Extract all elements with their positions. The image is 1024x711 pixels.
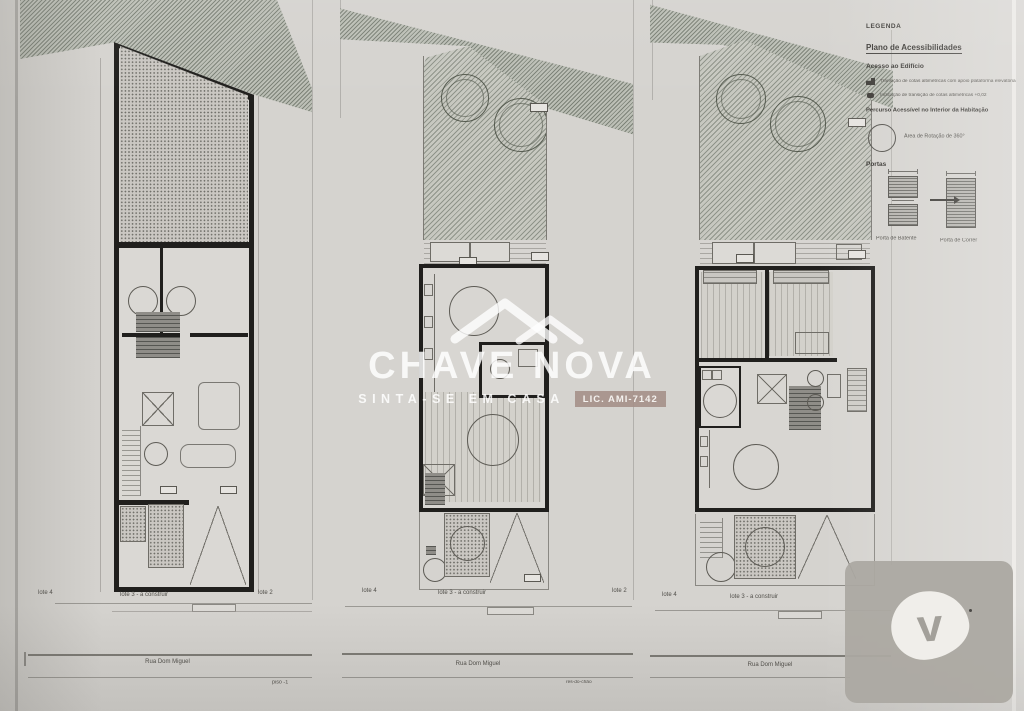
mid-wall xyxy=(699,358,837,362)
dimension-box xyxy=(848,250,866,259)
legend-title: LEGENDA xyxy=(866,24,901,31)
ramp-v-left xyxy=(490,513,517,583)
stairs-block xyxy=(425,473,445,505)
door-sliding-label: Porta de Correr xyxy=(940,238,977,243)
sliding-door-diagram xyxy=(946,178,976,228)
closet-rect xyxy=(795,332,829,354)
wardrobe xyxy=(773,270,829,284)
legend: LEGENDA Plano de Acessibilidades Acesso … xyxy=(866,24,1016,256)
dimension-box xyxy=(736,254,754,263)
corner-logo-letter: v xyxy=(916,601,945,649)
bathroom xyxy=(699,366,741,428)
dimension-box xyxy=(524,574,541,582)
shower-fixture xyxy=(518,349,538,367)
tree-circle xyxy=(441,74,489,122)
legend-access-item-1-label: Transição de cotas altimétricas com apoi… xyxy=(880,79,1016,84)
basement-plan xyxy=(114,36,254,592)
basement-mid-wall-a xyxy=(122,333,180,337)
hinged-door-diagram xyxy=(888,176,918,228)
counter-strip xyxy=(699,430,710,488)
tree-circle xyxy=(770,96,826,152)
bedroom-floor xyxy=(701,272,763,358)
door-hinged-label: Porta de Batente xyxy=(876,236,917,241)
corner-logo-blob: v xyxy=(887,586,974,664)
sheet-line-v1 xyxy=(312,0,313,600)
furniture-rect xyxy=(180,444,236,468)
planter-box xyxy=(754,242,796,264)
rotation-circle xyxy=(467,414,519,466)
basement-mid-wall-b xyxy=(190,333,248,337)
ground-garage xyxy=(419,512,549,590)
corner-logo-overlay: v xyxy=(845,561,1013,703)
ramp-v-left xyxy=(190,506,218,585)
wc-fixture xyxy=(490,359,510,379)
street-line xyxy=(650,677,850,678)
lot-label-right: lote 2 xyxy=(612,588,627,594)
ramp-v-right xyxy=(218,506,246,585)
dimension-box xyxy=(220,486,237,494)
property-line-right xyxy=(258,96,259,592)
street-line xyxy=(342,677,633,678)
garden-edge xyxy=(546,108,547,240)
logo-speck xyxy=(969,609,972,612)
garden-edge xyxy=(699,56,700,240)
dimension-box xyxy=(530,103,548,112)
legend-access-item-1: Transição de cotas altimétricas com apoi… xyxy=(866,77,1016,87)
tree-circle xyxy=(716,74,766,124)
kitchen-counter xyxy=(423,274,435,392)
first-floor-deck xyxy=(700,240,870,264)
sliding-arrow-head xyxy=(954,196,960,204)
street-label: Rua Dom Miguel xyxy=(398,661,558,667)
license-badge: LIC. AMI-7142 xyxy=(575,391,666,407)
dimension-box xyxy=(531,252,549,261)
rotation-circle xyxy=(733,444,779,490)
elevator-xbox xyxy=(142,392,174,426)
ground-deck xyxy=(424,240,546,264)
floor-label: piso -1 xyxy=(272,680,288,685)
street-line xyxy=(28,677,312,678)
legend-plan-title: Plano de Acessibilidades xyxy=(866,44,962,54)
wc-fixture xyxy=(807,394,824,411)
legend-rotation-label: Área de Rotação de 360° xyxy=(904,134,965,139)
ramp-v-right xyxy=(517,513,544,583)
dimension-box xyxy=(848,118,866,127)
legend-access-item-2-label: Indicação de transição de cotas altimétr… xyxy=(880,93,987,98)
landing-block xyxy=(426,546,436,555)
sliding-arrow xyxy=(930,199,954,201)
sink-fixture xyxy=(702,370,712,380)
photo-left-edge xyxy=(15,0,18,711)
legend-route-section: Percurso Acessível no Interior da Habita… xyxy=(866,108,988,114)
curb-rect xyxy=(487,607,534,615)
rotation-circle xyxy=(703,384,737,418)
wardrobe xyxy=(703,270,757,284)
bathroom xyxy=(479,342,547,398)
lot-label-center: lote 3 - a construir xyxy=(730,594,778,600)
level-marker-icon xyxy=(867,93,874,98)
shower-fixture xyxy=(827,374,841,398)
street-line xyxy=(112,611,312,612)
sheet-line-v3 xyxy=(633,0,634,600)
sink-fixture xyxy=(712,370,722,380)
elevator-xbox xyxy=(757,374,787,404)
dimension-box xyxy=(160,486,177,494)
legend-access-section: Acesso ao Edifício xyxy=(866,64,924,71)
lot-label-left: lote 4 xyxy=(662,592,677,598)
garage-car xyxy=(444,513,490,577)
legend-access-item-2: Indicação de transição de cotas altimétr… xyxy=(866,91,1016,101)
lot-boundary-line xyxy=(55,603,312,604)
rotation-circle-symbol xyxy=(868,124,896,152)
rotation-circle xyxy=(144,442,168,466)
garden-edge xyxy=(423,56,424,240)
bedroom-divider-wall xyxy=(765,270,769,358)
street-line xyxy=(342,653,633,655)
floor-label: rés-do-chão xyxy=(566,680,592,685)
platform-lift-icon xyxy=(866,78,875,85)
first-floor-house xyxy=(695,266,875,512)
lot-label-center: lote 3 - a construir xyxy=(438,590,486,596)
rotation-circle xyxy=(449,286,499,336)
street-label: Rua Dom Miguel xyxy=(60,659,275,665)
legend-doors-title: Portas xyxy=(866,162,886,169)
basement-garden-stipple xyxy=(120,46,248,244)
curb-rect xyxy=(778,611,822,619)
bath-cabinet xyxy=(847,368,867,412)
street-label: Rua Dom Miguel xyxy=(700,662,840,668)
photo-edge-mark xyxy=(24,652,26,666)
ground-house xyxy=(419,264,549,512)
lot-label-center: lote 3 - a construir xyxy=(120,592,168,598)
wc-fixture xyxy=(807,370,824,387)
garage-car xyxy=(734,515,796,579)
ramp-stipple-large xyxy=(148,504,184,568)
stairs-block xyxy=(136,336,180,358)
street-line xyxy=(28,654,312,656)
stair-run xyxy=(122,426,141,496)
ramp-v-left xyxy=(798,515,827,579)
basement-garden-wall xyxy=(119,242,249,248)
stairs-block xyxy=(136,312,180,332)
rotation-circle xyxy=(706,552,736,582)
floor-plan-photo: lote 4 lote 3 - a construir lote 2 Rua D… xyxy=(0,0,1024,711)
property-line-left xyxy=(100,58,101,592)
ramp-stipple-small xyxy=(120,506,146,542)
furniture-rect xyxy=(198,382,240,430)
lot-label-right: lote 2 xyxy=(258,590,273,596)
lot-label-left: lote 4 xyxy=(38,590,53,596)
lot-label-left: lote 4 xyxy=(362,588,377,594)
